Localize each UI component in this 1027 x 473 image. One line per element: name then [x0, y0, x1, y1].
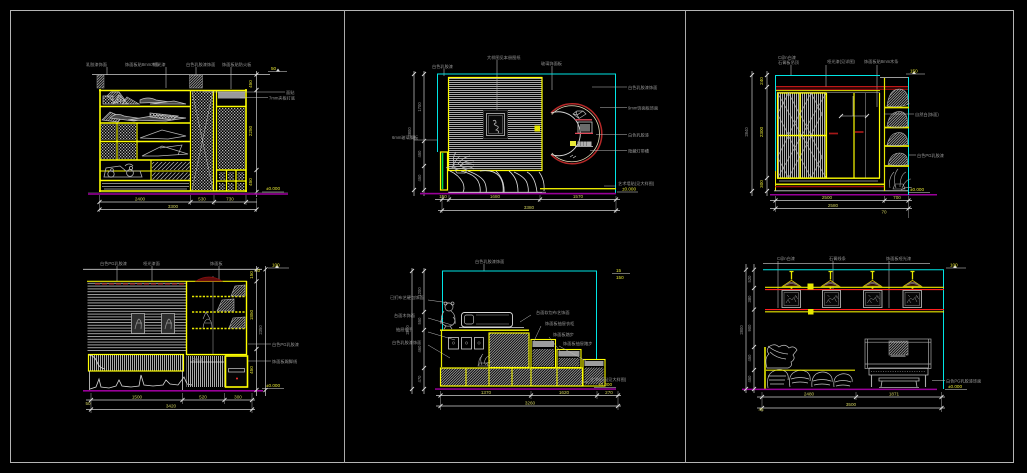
svg-text:饰面板: 饰面板: [210, 260, 223, 267]
svg-text:饰面板哑光漆: 饰面板哑光漆: [886, 255, 911, 262]
svg-text:2015: 2015: [193, 357, 203, 362]
svg-text:520: 520: [747, 275, 752, 283]
svg-text:2480: 2480: [804, 392, 815, 397]
svg-text:哑光漆: 哑光漆: [153, 61, 166, 68]
svg-text:白色乳胶漆饰面: 白色乳胶漆饰面: [475, 258, 504, 265]
svg-text:C@n白漆: C@n白漆: [777, 255, 795, 262]
svg-text:150: 150: [910, 69, 918, 74]
svg-text:3500: 3500: [846, 402, 857, 407]
svg-text:白色乳胶漆饰面: 白色乳胶漆饰面: [392, 339, 421, 346]
svg-text:150: 150: [616, 275, 624, 280]
svg-text:玻璃饰面板: 玻璃饰面板: [541, 60, 563, 67]
svg-text:2800: 2800: [739, 325, 744, 335]
svg-text:3420: 3420: [166, 404, 177, 409]
svg-text:±0.000: ±0.000: [948, 384, 962, 389]
svg-text:白色乳胶漆: 白色乳胶漆: [432, 63, 453, 70]
svg-text:台面软包布艺饰面: 台面软包布艺饰面: [536, 309, 570, 316]
svg-text:300: 300: [759, 180, 764, 188]
svg-text:抽屉拉手: 抽屉拉手: [396, 326, 413, 333]
svg-text:±0.000: ±0.000: [266, 383, 280, 388]
svg-text:白色PG乳胶漆: 白色PG乳胶漆: [272, 341, 299, 348]
svg-text:已扪布艺硬包饰面: 已扪布艺硬包饰面: [390, 294, 424, 301]
svg-text:3300: 3300: [168, 204, 179, 209]
svg-text:自然白(饰面): 自然白(饰面): [915, 111, 939, 118]
svg-text:1570: 1570: [573, 194, 584, 199]
svg-text:2300: 2300: [759, 126, 764, 137]
svg-text:1500: 1500: [132, 395, 143, 400]
svg-text:450: 450: [417, 174, 422, 182]
svg-text:1680: 1680: [490, 194, 501, 199]
svg-text:饰面板抽屉衣柜: 饰面板抽屉衣柜: [545, 320, 574, 327]
svg-text:饰面板抽屉踏步: 饰面板抽屉踏步: [563, 340, 592, 347]
svg-text:450: 450: [747, 354, 752, 362]
svg-text:450: 450: [248, 80, 253, 88]
svg-text:3260: 3260: [525, 401, 536, 406]
svg-text:饰面板贴8mm木条: 饰面板贴8mm木条: [864, 58, 899, 65]
svg-text:240: 240: [759, 77, 764, 85]
svg-text:乳胶漆饰面: 乳胶漆饰面: [86, 61, 107, 68]
svg-text:520: 520: [199, 395, 207, 400]
svg-text:15: 15: [616, 268, 622, 273]
svg-text:470: 470: [417, 375, 422, 383]
svg-text:隐藏灯带槽: 隐藏灯带槽: [628, 148, 650, 155]
svg-text:哑光漆面: 哑光漆面: [143, 260, 160, 267]
svg-text:9mm饰面板饰面: 9mm饰面板饰面: [628, 105, 658, 112]
svg-text:±0.000: ±0.000: [622, 187, 636, 192]
svg-text:7mm夹板打底: 7mm夹板打底: [269, 95, 295, 102]
svg-text:900: 900: [747, 324, 752, 332]
svg-text:白色乳胶漆: 白色乳胶漆: [628, 132, 649, 139]
svg-text:白色PG乳胶漆: 白色PG乳胶漆: [100, 260, 127, 267]
svg-text:3380: 3380: [524, 205, 535, 210]
svg-text:大样图见本册图纸: 大样图见本册图纸: [487, 54, 521, 61]
svg-text:150: 150: [249, 271, 254, 279]
svg-text:270: 270: [605, 390, 613, 395]
svg-text:1871: 1871: [889, 392, 900, 397]
svg-text:100: 100: [950, 263, 958, 268]
svg-text:饰面板贴防火板: 饰面板贴防火板: [222, 61, 252, 68]
svg-text:±0.000: ±0.000: [266, 186, 280, 191]
svg-text:1850: 1850: [249, 309, 254, 320]
svg-text:450: 450: [417, 150, 422, 158]
svg-text:±0.000: ±0.000: [910, 187, 924, 192]
svg-text:70: 70: [881, 210, 887, 215]
svg-text:石膏板吊顶: 石膏板吊顶: [778, 59, 800, 66]
svg-text:2400: 2400: [135, 197, 146, 202]
svg-text:100: 100: [272, 263, 280, 268]
svg-text:530: 530: [198, 197, 206, 202]
svg-text:饰面板踏步: 饰面板踏步: [553, 331, 574, 338]
svg-text:台面木饰面: 台面木饰面: [394, 312, 415, 319]
svg-text:1620: 1620: [559, 390, 570, 395]
svg-text:50: 50: [85, 401, 91, 406]
svg-text:饰面板踢脚线: 饰面板踢脚线: [272, 358, 298, 365]
svg-text:白色PG乳胶漆: 白色PG乳胶漆: [917, 152, 944, 159]
svg-text:2500: 2500: [822, 195, 833, 200]
svg-text:380: 380: [747, 295, 752, 303]
svg-text:550: 550: [417, 317, 422, 325]
svg-text:450: 450: [747, 375, 752, 383]
svg-text:白色乳胶漆饰面: 白色乳胶漆饰面: [628, 84, 657, 91]
svg-text:300: 300: [234, 395, 242, 400]
svg-text:1370: 1370: [481, 390, 492, 395]
svg-text:45: 45: [758, 407, 764, 412]
svg-text:石膏线条: 石膏线条: [829, 255, 847, 262]
svg-text:150: 150: [439, 194, 447, 199]
svg-text:2580: 2580: [828, 203, 839, 208]
svg-text:哑光漆(见详图): 哑光漆(见详图): [827, 58, 856, 65]
svg-text:±0.000: ±0.000: [598, 382, 612, 387]
svg-text:450: 450: [249, 366, 254, 374]
svg-text:450: 450: [248, 178, 253, 186]
svg-text:1700: 1700: [417, 102, 422, 112]
svg-text:2350: 2350: [258, 325, 263, 335]
svg-text:50: 50: [271, 66, 277, 71]
svg-text:2250: 2250: [248, 125, 253, 136]
svg-text:460: 460: [417, 345, 422, 353]
svg-text:白色乳胶漆饰面: 白色乳胶漆饰面: [186, 61, 215, 68]
svg-text:730: 730: [226, 197, 234, 202]
svg-text:700: 700: [893, 195, 901, 200]
svg-text:2840: 2840: [744, 127, 749, 137]
